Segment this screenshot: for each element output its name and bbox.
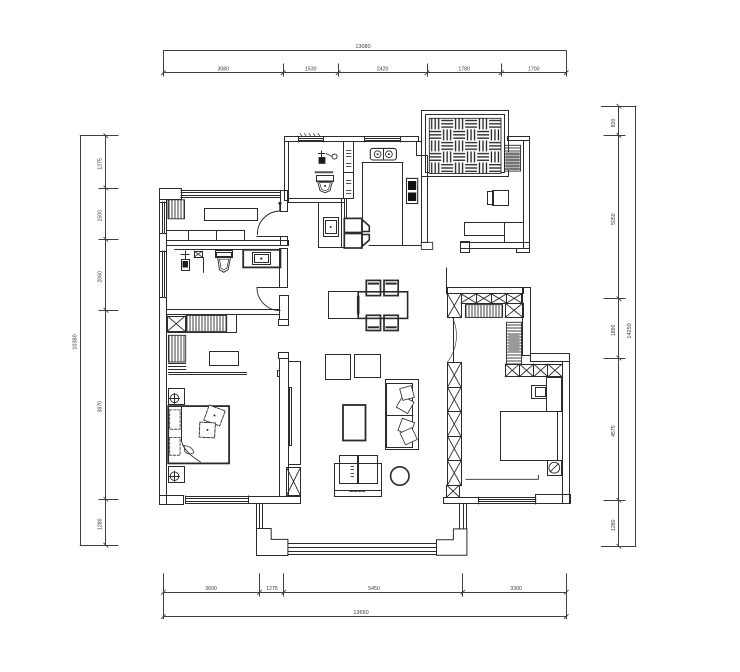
svg-text:4575: 4575 — [611, 425, 617, 437]
svg-text:1280: 1280 — [98, 518, 104, 530]
svg-text:1700: 1700 — [528, 67, 540, 73]
svg-text:3870: 3870 — [98, 401, 104, 413]
svg-text:3080: 3080 — [218, 67, 230, 73]
svg-text:1280: 1280 — [611, 519, 617, 531]
svg-text:3300: 3300 — [510, 586, 522, 592]
svg-text:5050: 5050 — [611, 213, 617, 225]
svg-text:1275: 1275 — [266, 586, 278, 592]
svg-text:820: 820 — [611, 118, 617, 127]
svg-text:2060: 2060 — [98, 271, 104, 283]
svg-text:10380: 10380 — [73, 334, 79, 349]
svg-text:1780: 1780 — [458, 67, 470, 73]
svg-text:14250: 14250 — [627, 323, 633, 338]
svg-text:2420: 2420 — [377, 67, 389, 73]
svg-text:5450: 5450 — [368, 586, 380, 592]
svg-text:13080: 13080 — [355, 44, 370, 50]
svg-text:13650: 13650 — [353, 610, 368, 616]
svg-text:1500: 1500 — [98, 210, 104, 222]
svg-text:3600: 3600 — [205, 586, 217, 592]
svg-text:1275: 1275 — [98, 158, 104, 170]
svg-text:1890: 1890 — [611, 325, 617, 337]
svg-text:1530: 1530 — [305, 67, 317, 73]
